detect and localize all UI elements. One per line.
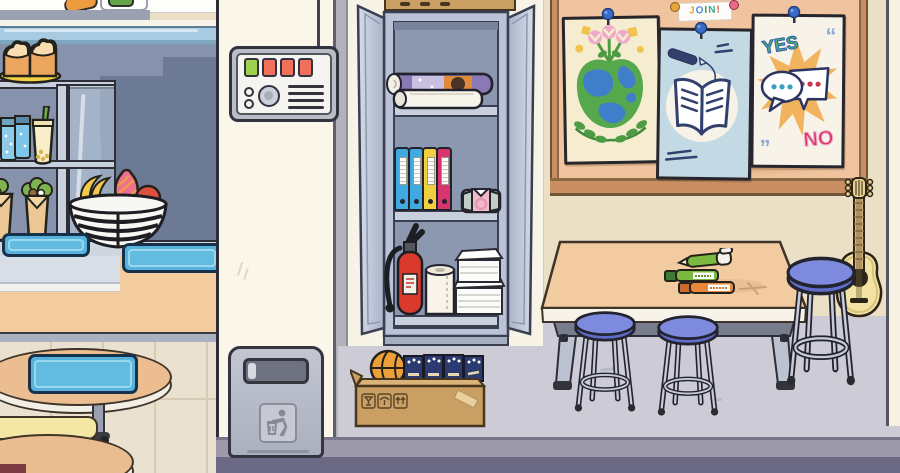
panel-button-red[interactable]: [280, 58, 295, 77]
menu-food-greens-icon: [108, 0, 134, 7]
green-marker: [665, 270, 718, 281]
trash-can[interactable]: [228, 346, 324, 458]
counter-left-tier: [0, 256, 120, 284]
tulip-flowers: [588, 25, 631, 63]
panel-knob[interactable]: [258, 85, 280, 107]
kitchen-wall-shadow-step: [163, 57, 216, 77]
orange-marker: [679, 282, 734, 293]
panel-vent-line: [288, 106, 324, 109]
pita-wrap: [0, 179, 12, 240]
paper-towel-roll[interactable]: [426, 265, 454, 314]
join-sign-text: JOIN!: [689, 4, 721, 16]
panel-dot: [244, 87, 254, 97]
push-pin-icon[interactable]: [601, 8, 615, 26]
board-frame-left: [550, 0, 559, 178]
wall-scratch: [237, 262, 243, 276]
bubble-tea-cup: [33, 106, 53, 164]
cafeteria-tray-on-table[interactable]: [28, 354, 138, 394]
bread-loaves-on-plate[interactable]: [0, 36, 64, 84]
stool[interactable]: [572, 306, 638, 420]
panel-button-green[interactable]: [244, 58, 259, 77]
board-frame-bottom: [550, 178, 868, 196]
cabinet-shelf: [394, 316, 498, 326]
cafeteria-tray[interactable]: [122, 243, 222, 273]
floor-box-group[interactable]: [350, 338, 490, 430]
yes-no-poster[interactable]: YES “ „ NO: [750, 14, 845, 169]
wall-scratch: [243, 268, 249, 280]
table-scratch: [738, 281, 768, 297]
panel-button-red[interactable]: [298, 58, 313, 77]
person-throwing-trash-icon: [261, 405, 295, 441]
pita-wrap: [22, 178, 52, 240]
earth-flowers-poster[interactable]: [562, 15, 663, 165]
folded-shirt[interactable]: [460, 182, 502, 214]
panel-dot: [244, 99, 254, 109]
panel-vent-line: [288, 85, 324, 88]
paper-stacks[interactable]: [454, 249, 504, 314]
panel-button-red[interactable]: [262, 58, 277, 77]
stool[interactable]: [784, 256, 858, 390]
rolled-white-paper[interactable]: [394, 90, 482, 108]
floor-band-dark: [216, 457, 900, 473]
board-frame-right: [859, 0, 868, 178]
binder[interactable]: [436, 147, 452, 211]
pin-pink[interactable]: [729, 0, 739, 10]
green-pen: [678, 248, 733, 269]
counter-kick-bar: [0, 332, 216, 342]
open-book-icon: [675, 79, 730, 134]
drinks-shelf-items[interactable]: [0, 106, 56, 166]
control-panel[interactable]: [229, 46, 339, 122]
soda-can: [1, 118, 16, 160]
panel-vent-line: [288, 99, 324, 102]
counter-left-lip: [0, 284, 120, 292]
open-book-poster[interactable]: [656, 27, 753, 180]
push-pin-icon[interactable]: [787, 6, 801, 24]
stool[interactable]: [655, 310, 721, 424]
quote-mark: „: [760, 131, 771, 141]
binder-row: [394, 147, 450, 211]
panel-vent-line: [288, 92, 324, 95]
soda-can: [15, 116, 30, 158]
panel-wire: [317, 0, 320, 48]
pin-orange[interactable]: [670, 2, 680, 12]
quote-mark: “: [825, 31, 836, 41]
game-scene: JOIN!: [0, 0, 900, 473]
blue-books: [404, 355, 483, 381]
earth-apple: [576, 59, 643, 129]
round-speech-bubble: [762, 72, 802, 111]
cabinet-door-left: [358, 6, 384, 334]
cafeteria-tray[interactable]: [2, 233, 90, 257]
push-pin-icon[interactable]: [694, 22, 708, 40]
cabinet-door-right: [508, 6, 534, 334]
trash-sticker: [259, 403, 297, 443]
speech-bubbles-icon: [760, 65, 833, 128]
floor-mat-sliver: [0, 464, 26, 473]
cardboard-box: [350, 370, 484, 426]
trash-slot[interactable]: [243, 358, 309, 384]
no-word: NO: [803, 127, 835, 152]
join-sign[interactable]: JOIN!: [678, 1, 733, 22]
